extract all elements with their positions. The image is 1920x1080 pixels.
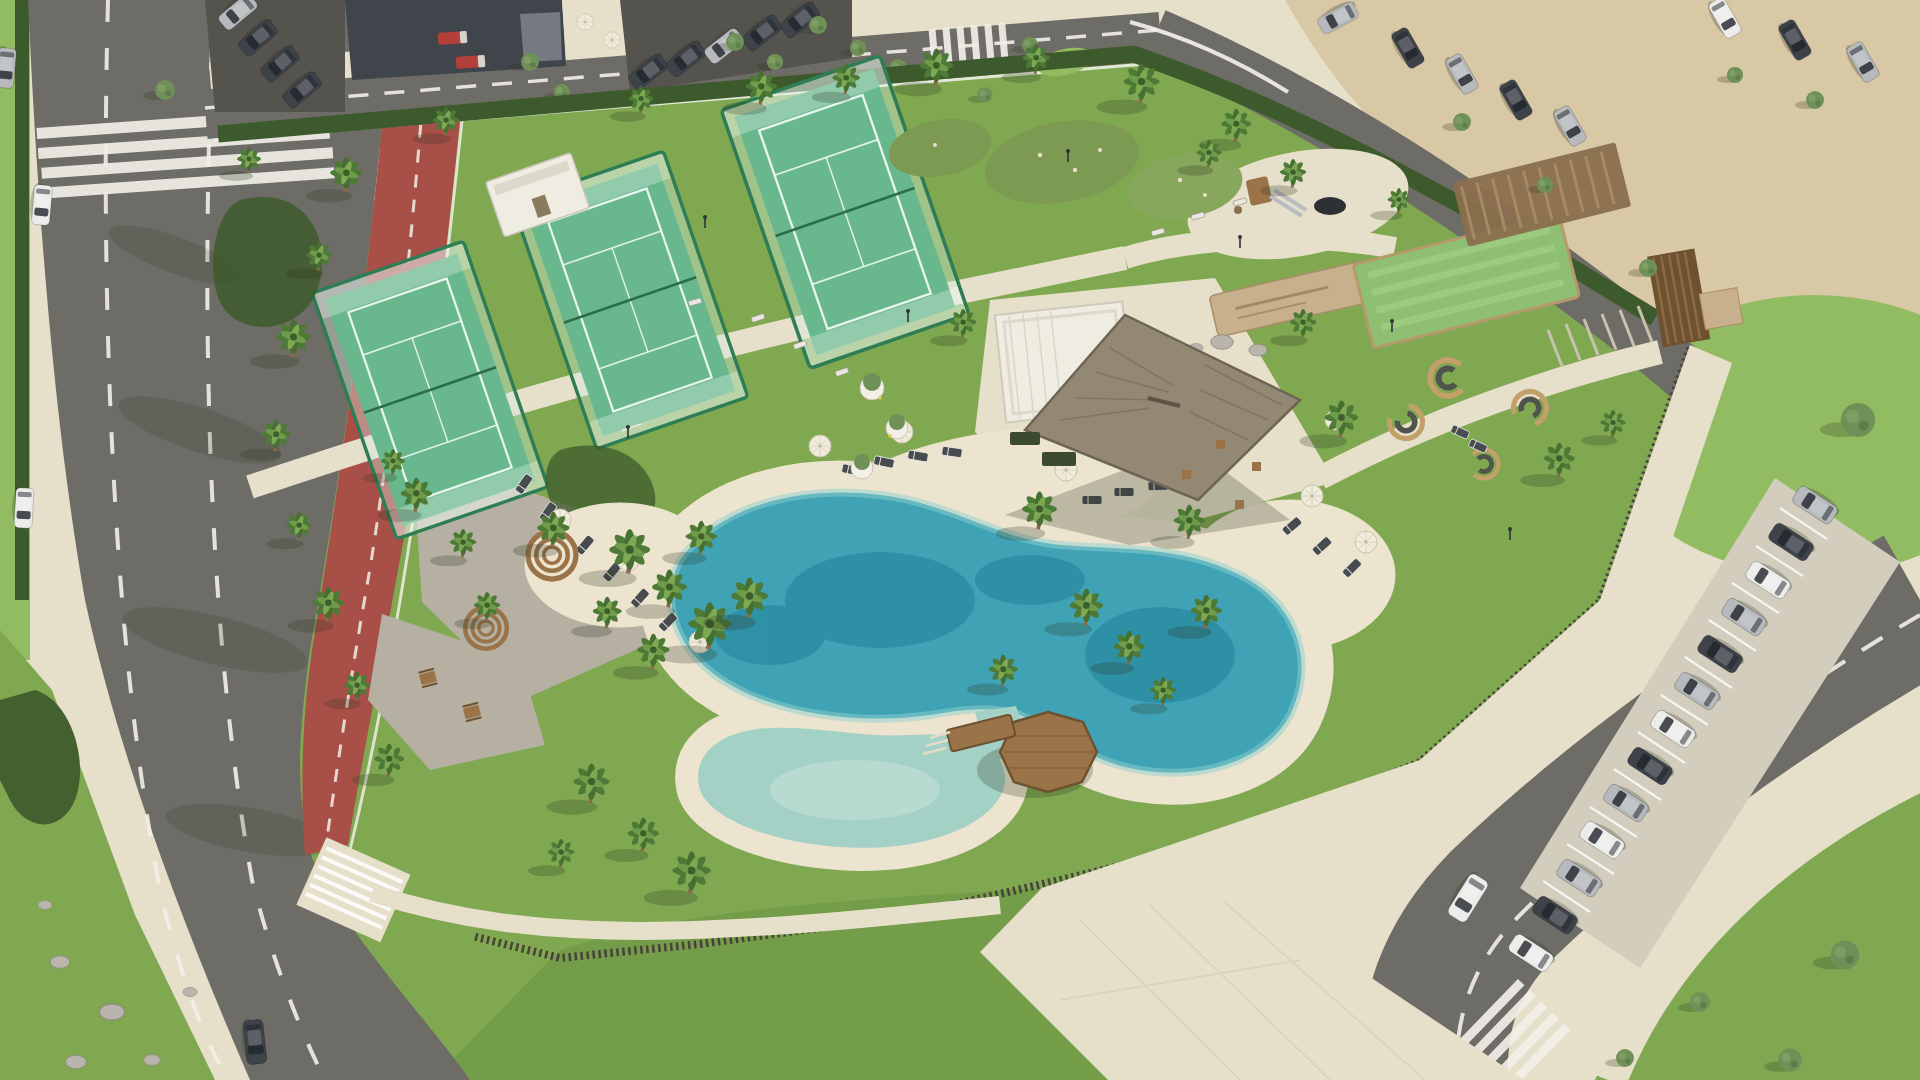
terrace-table: [1252, 462, 1261, 471]
parasol: [1301, 485, 1323, 507]
landscape-rock: [144, 1055, 161, 1066]
planter-box: [1010, 432, 1040, 445]
red-truck: [438, 31, 468, 45]
play-post: [1234, 206, 1242, 214]
parasol: [809, 435, 831, 457]
terrace-table: [1182, 470, 1191, 479]
landscape-rock: [99, 1004, 124, 1020]
landscape-rock: [38, 901, 52, 910]
terrace-umbrella: [604, 32, 621, 49]
red-truck: [456, 55, 486, 69]
landscape-rock: [1249, 344, 1267, 356]
landscape-rock: [50, 956, 70, 969]
landscape-rock: [183, 988, 197, 997]
terrace-table: [1235, 500, 1244, 509]
kids-pool-shallow: [770, 760, 940, 820]
landscape-rock: [1211, 335, 1233, 349]
parasol: [1355, 531, 1377, 553]
planter-box: [1042, 452, 1076, 466]
terrace-table: [1216, 440, 1225, 449]
aerial-photo: [0, 0, 1920, 1080]
play-disc: [1314, 197, 1346, 215]
landscape-rock: [66, 1055, 87, 1069]
aerial-photo-canvas: [0, 0, 1920, 1080]
shrub-bed: [213, 197, 322, 327]
terrace-umbrella: [577, 14, 594, 31]
